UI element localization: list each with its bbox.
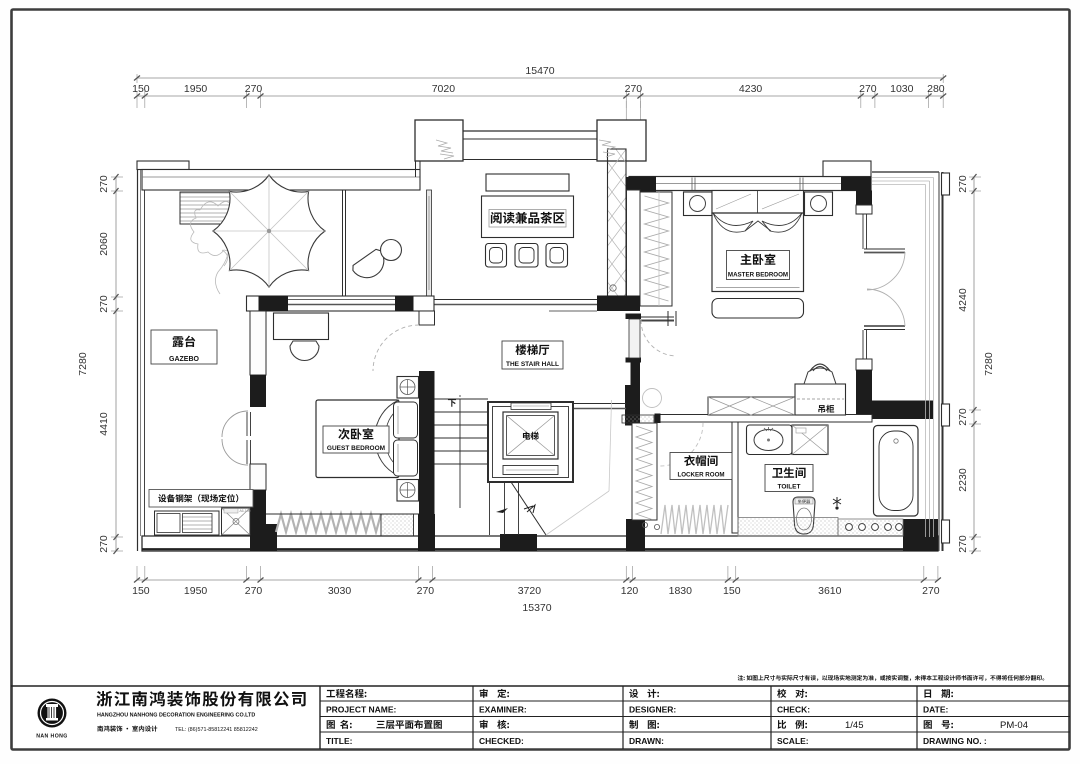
svg-text:270: 270 [98,295,110,313]
svg-text:150: 150 [132,83,150,95]
svg-text:2230: 2230 [957,468,969,492]
svg-text:2060: 2060 [98,232,110,256]
svg-text:LOCKER ROOM: LOCKER ROOM [677,472,724,479]
svg-text:270: 270 [98,175,110,193]
svg-text:3030: 3030 [328,585,352,597]
svg-text:7280: 7280 [983,352,995,376]
svg-text:280: 280 [927,83,945,95]
svg-text:4230: 4230 [739,83,763,95]
svg-text:270: 270 [625,83,643,95]
svg-text:150: 150 [723,585,741,597]
svg-text:DATE:: DATE: [923,705,949,715]
svg-text:3720: 3720 [518,585,542,597]
svg-text:EXAMINER:: EXAMINER: [479,705,527,715]
svg-text:TOILET: TOILET [778,484,801,491]
svg-text:DRAWN:: DRAWN: [629,736,664,746]
svg-text:270: 270 [957,175,969,193]
svg-text:1030: 1030 [890,83,914,95]
svg-text:NAN HONG: NAN HONG [36,734,67,740]
svg-text:120: 120 [621,585,639,597]
svg-text:THE STAIR HALL: THE STAIR HALL [506,361,559,368]
svg-text:1830: 1830 [669,585,693,597]
svg-text:PM-04: PM-04 [1000,720,1028,731]
svg-text:SCALE:: SCALE: [777,736,809,746]
svg-text:270: 270 [98,535,110,553]
svg-text:3610: 3610 [818,585,842,597]
svg-text:270: 270 [957,535,969,553]
svg-text:270: 270 [245,585,263,597]
svg-text:1950: 1950 [184,585,208,597]
svg-text:DESIGNER:: DESIGNER: [629,705,676,715]
svg-text:MASTER BEDROOM: MASTER BEDROOM [728,272,788,279]
svg-text:1/45: 1/45 [845,720,864,731]
svg-text:PROJECT NAME:: PROJECT NAME: [326,705,397,715]
svg-text:150: 150 [132,585,150,597]
svg-text:CHECK:: CHECK: [777,705,810,715]
svg-text:270: 270 [859,83,877,95]
svg-text:TEL: (86)571-85812241 85: TEL: (86)571-85812241 85812242 [175,727,258,733]
svg-text:7020: 7020 [432,83,456,95]
svg-text:DRAWING NO. :: DRAWING NO. : [923,736,987,746]
svg-text:7280: 7280 [77,352,89,376]
svg-text:CHECKED:: CHECKED: [479,736,524,746]
svg-text:270: 270 [417,585,435,597]
svg-text:4240: 4240 [957,288,969,312]
svg-text:GUEST BEDROOM: GUEST BEDROOM [327,445,385,452]
svg-text:270: 270 [245,83,263,95]
svg-text:1950: 1950 [184,83,208,95]
svg-text:15370: 15370 [522,602,551,614]
svg-text:HANGZHOU NANHONG DECORATION: HANGZHOU NANHONG DECORATION ENGINEERING … [97,713,255,719]
svg-text:270: 270 [957,408,969,426]
svg-text:TITLE:: TITLE: [326,736,353,746]
svg-text:15470: 15470 [525,65,554,77]
svg-text:GAZEBO: GAZEBO [169,356,200,363]
svg-text:270: 270 [922,585,940,597]
svg-text:4410: 4410 [98,412,110,436]
svg-text:A6-100: A6-100 [239,509,250,513]
